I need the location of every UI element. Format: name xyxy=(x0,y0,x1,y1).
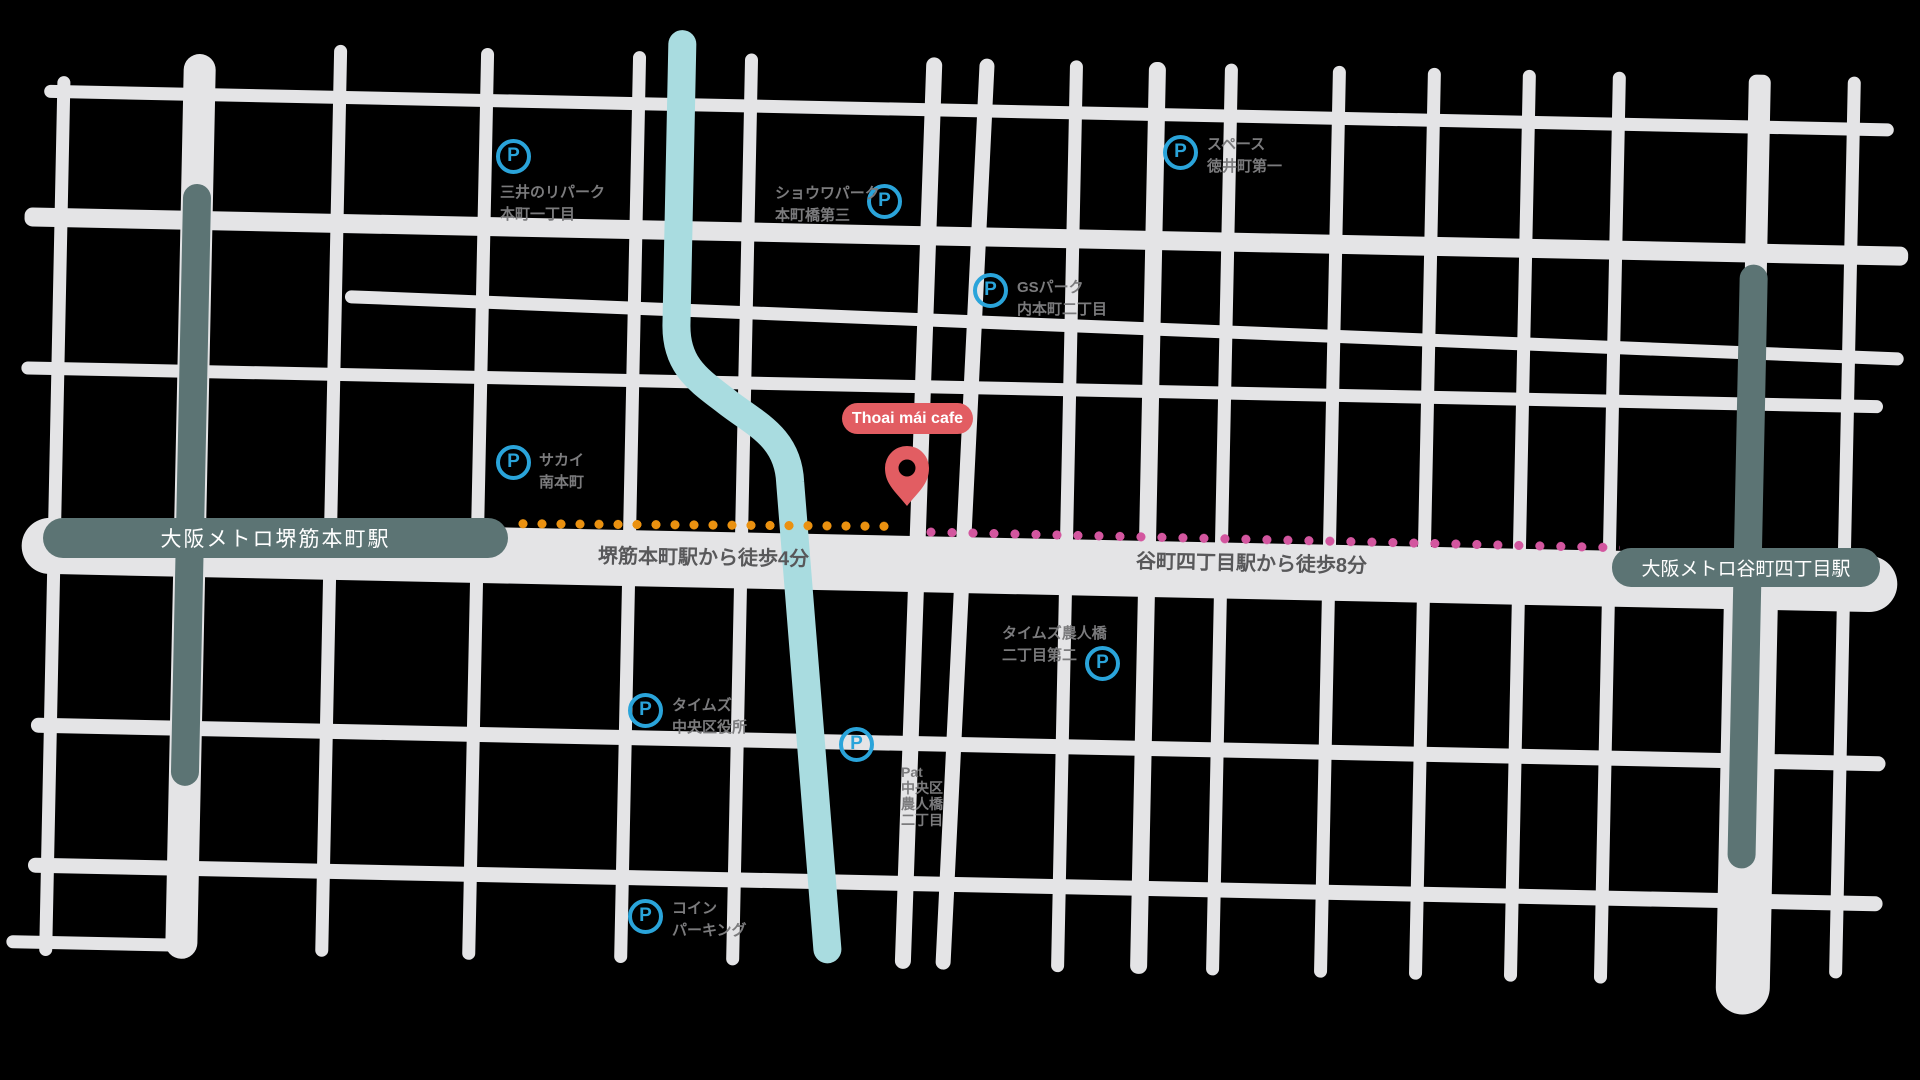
river-path xyxy=(663,44,846,949)
parking-icon: P xyxy=(1163,135,1198,170)
station-badge-sakaisuji-hommachi: 大阪メトロ堺筋本町駅 xyxy=(43,518,508,558)
parking-label-pat-chuo: Pat 中央区 農人橋 二丁目 xyxy=(901,764,943,828)
parking-label-gs-park: GSパーク 内本町二丁目 xyxy=(1017,277,1107,321)
parking-label-times-ninbashi: タイムズ農人橋 二丁目第二 xyxy=(1002,623,1107,667)
parking-label-showa-park: ショウワパーク 本町橋第三 xyxy=(775,183,880,227)
parking-label-sakai: サカイ 南本町 xyxy=(539,450,584,494)
station-badge-tanimachi-4chome: 大阪メトロ谷町四丁目駅 xyxy=(1612,548,1880,587)
parking-icon: P xyxy=(973,273,1008,308)
parking-icon: P xyxy=(628,693,663,728)
cafe-location-pin-icon xyxy=(879,444,935,508)
parking-label-space-tokuicho: スペース 徳井町第一 xyxy=(1207,134,1282,178)
walk-time-sakaisuji: 堺筋本町駅から徒歩4分 xyxy=(598,540,810,572)
parking-icon: P xyxy=(496,139,531,174)
cafe-badge: Thoai mái cafe xyxy=(842,403,973,434)
parking-icon: P xyxy=(839,727,874,762)
station-name: 大阪メトロ谷町四丁目駅 xyxy=(1641,554,1850,581)
station-name: 大阪メトロ堺筋本町駅 xyxy=(161,523,391,553)
parking-label-mitsui-repark: 三井のリパーク 本町一丁目 xyxy=(500,182,605,226)
parking-label-coin-parking: コイン パーキング xyxy=(672,898,747,942)
parking-icon: P xyxy=(496,445,531,480)
walk-time-tanimachi: 谷町四丁目駅から徒歩8分 xyxy=(1136,545,1368,579)
parking-icon: P xyxy=(628,899,663,934)
cafe-name: Thoai mái cafe xyxy=(852,410,963,428)
access-map: 大阪メトロ堺筋本町駅 大阪メトロ谷町四丁目駅 堺筋本町駅から徒歩4分 谷町四丁目… xyxy=(0,0,1920,1080)
parking-label-times-chuo: タイムズ 中央区役所 xyxy=(672,695,747,739)
